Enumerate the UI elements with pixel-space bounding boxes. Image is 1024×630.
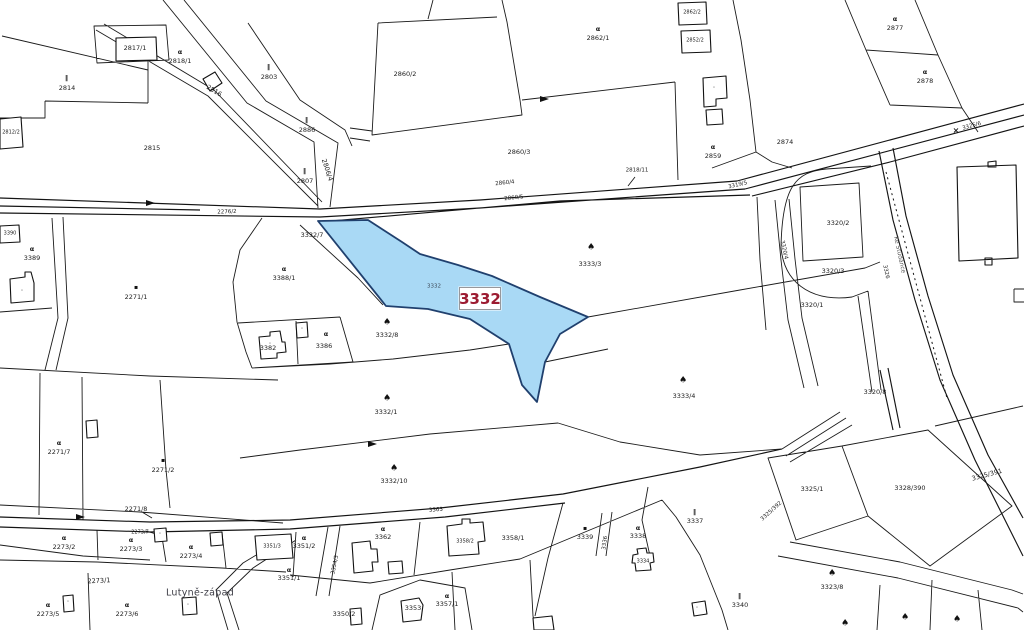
road-embankment-ticks xyxy=(886,172,947,398)
cadastral-map-viewport[interactable]: 2817/1281428152812/22818/128032886280728… xyxy=(0,0,1024,630)
highlighted-parcel-3332[interactable] xyxy=(318,220,588,402)
highlighted-parcel-number-badge[interactable]: 3332 xyxy=(459,287,501,310)
cadastral-linework xyxy=(0,0,1024,630)
highlighted-parcel-number: 3332 xyxy=(459,290,501,308)
